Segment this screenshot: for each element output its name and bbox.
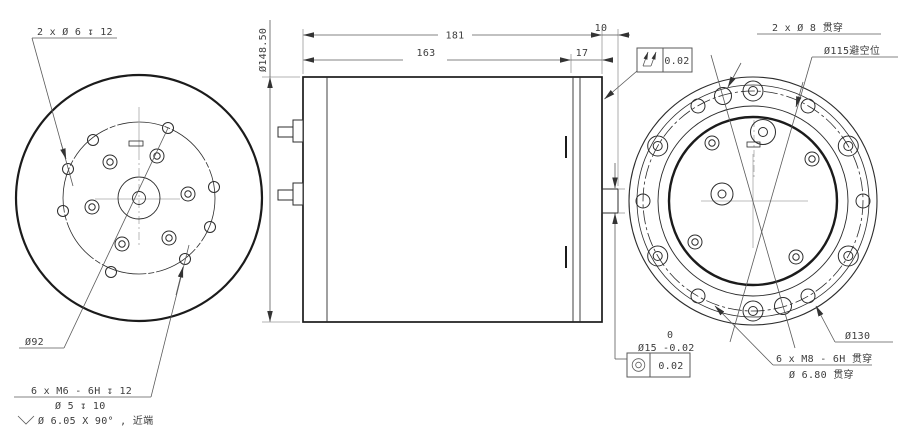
left-thread-label-1: 6 x M6 - 6H ↧ 12	[31, 386, 132, 397]
concentricity-frame: 0.02	[627, 353, 690, 377]
left-thread-label-2: Ø 5 ↧ 10	[55, 400, 106, 412]
right-thread-label-2: Ø 6.80 贯穿	[789, 368, 854, 381]
svg-text:17: 17	[576, 48, 589, 59]
right-holes-label: 2 x Ø 8 贯穿	[772, 21, 843, 34]
left-keyway-mark	[129, 141, 143, 146]
dim-163: 163	[304, 48, 571, 60]
extension-lines	[262, 29, 625, 322]
shaft-tol-upper: 0	[667, 330, 673, 341]
right-keyway-mark	[747, 142, 760, 147]
right-clearance-label: Ø115避空位	[824, 44, 880, 57]
shaft-dimension: Ø15 0 -0.02	[615, 163, 695, 359]
left-bolt-circle-label: Ø92	[25, 336, 44, 348]
left-tapped-holes	[85, 149, 195, 251]
svg-text:181: 181	[446, 31, 465, 42]
svg-text:0.02: 0.02	[664, 56, 689, 67]
left-holes-label: 2 x Ø 6 ↧ 12	[37, 26, 113, 38]
left-thread-label-3: Ø 6.05 X 90° , 近端	[38, 414, 153, 427]
svg-text:Ø148.50: Ø148.50	[257, 28, 269, 72]
svg-text:163: 163	[417, 48, 436, 59]
svg-text:0.02: 0.02	[658, 361, 683, 372]
shaft-dia-text: Ø15	[638, 342, 657, 354]
engineering-drawing: 2 x Ø 6 ↧ 12 Ø92 6 x M6 - 6H ↧ 12 Ø 5 ↧ …	[0, 0, 902, 441]
dim-10: 10	[595, 23, 630, 35]
connector-plugs	[278, 120, 303, 205]
shaft-boss	[602, 189, 618, 213]
dim-17: 17	[571, 48, 613, 60]
cad-drawing-canvas: 2 x Ø 6 ↧ 12 Ø92 6 x M6 - 6H ↧ 12 Ø 5 ↧ …	[0, 0, 902, 441]
right-inner-features	[688, 120, 819, 265]
right-bolt-circle-label: Ø130	[845, 330, 870, 342]
right-thread-label-1: 6 x M8 - 6H 贯穿	[776, 352, 872, 365]
dim-181: 181	[304, 31, 602, 42]
left-view: 2 x Ø 6 ↧ 12 Ø92 6 x M6 - 6H ↧ 12 Ø 5 ↧ …	[14, 26, 262, 427]
countersink-icon	[18, 416, 34, 424]
right-view: 2 x Ø 8 贯穿 Ø115避空位 Ø130 6 x M8 - 6H 贯穿 Ø…	[629, 21, 898, 381]
body-outline	[303, 77, 602, 322]
svg-text:10: 10	[595, 23, 608, 34]
shaft-tol-lower: -0.02	[663, 343, 695, 354]
